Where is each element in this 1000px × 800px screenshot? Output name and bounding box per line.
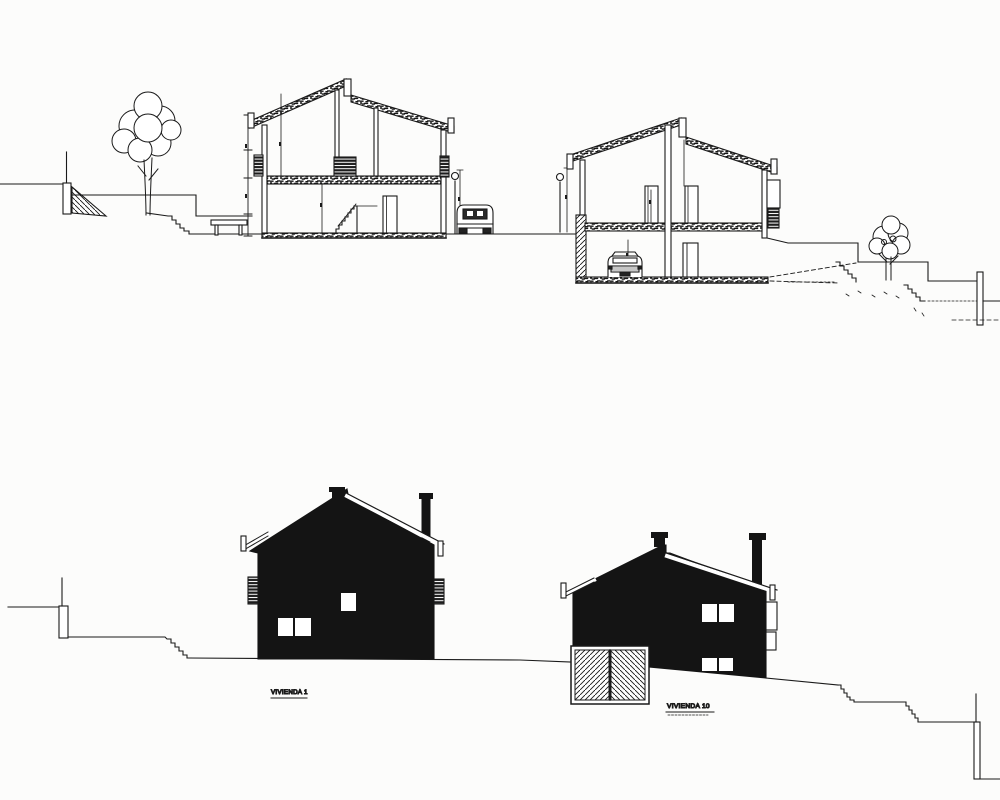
- floor-slab: [267, 176, 441, 184]
- garden-bench: [211, 220, 247, 235]
- house-1-cross-section: [248, 79, 454, 238]
- terrain-steps-east: [838, 685, 903, 702]
- chimney-icon: [749, 533, 766, 586]
- clerestory-wall: [679, 118, 686, 137]
- terrain-steps-west: [68, 637, 189, 658]
- window: [278, 618, 293, 636]
- dimension-line: [279, 94, 322, 233]
- cross-section-view: [0, 79, 1000, 325]
- stair-flight-lower: [336, 206, 357, 233]
- window: [719, 658, 733, 671]
- louver-vent: [248, 577, 258, 604]
- house-2-elevation: [561, 532, 777, 704]
- retaining-wall-west: [59, 578, 68, 638]
- dimension-line: [244, 115, 252, 236]
- side-window-panel: [766, 602, 777, 630]
- grass-ticks: [846, 291, 924, 316]
- window: [702, 658, 717, 671]
- blueprint-page: VIVIENDA 1: [0, 0, 1000, 800]
- roof-left: [570, 118, 681, 162]
- slope-line: [766, 678, 838, 685]
- interior-wall: [374, 108, 378, 176]
- basement-slab: [576, 277, 768, 283]
- retaining-wall-east: [974, 694, 1000, 779]
- wall-right: [762, 170, 767, 238]
- elevation-view: VIVIENDA 1: [8, 487, 1000, 779]
- door: [685, 186, 698, 223]
- dimension-line: [564, 168, 570, 232]
- window: [295, 618, 311, 636]
- wall-left: [580, 160, 585, 215]
- window: [719, 604, 734, 622]
- roof-left: [250, 79, 346, 128]
- louver-vent: [440, 156, 449, 177]
- house-1-elevation: [241, 487, 444, 659]
- house-2-label: VIVIENDA 10: [667, 703, 710, 710]
- louver-vent: [768, 208, 779, 228]
- fascia-board: [771, 159, 777, 174]
- door: [383, 196, 397, 233]
- tree-icon: [112, 92, 181, 215]
- tree-icon: [869, 216, 910, 280]
- wall-left: [262, 125, 267, 237]
- louver-vent: [434, 579, 444, 604]
- fascia-board: [567, 154, 573, 169]
- street-lamp-icon: [557, 174, 564, 233]
- side-window-panel: [766, 632, 776, 650]
- terrain-steps-east: [903, 702, 974, 722]
- basement-door: [683, 243, 698, 277]
- floor-slab: [585, 223, 762, 231]
- interior-wall: [665, 125, 671, 277]
- louver-vent: [254, 155, 263, 176]
- window: [341, 593, 356, 611]
- roof-right: [686, 137, 777, 174]
- silhouette: [250, 489, 434, 659]
- terrain-steps-east: [904, 285, 925, 301]
- house-1-label: VIVIENDA 1: [271, 689, 308, 696]
- car-icon: [608, 252, 642, 277]
- vent-shaft: [767, 180, 780, 208]
- terrain-east: [767, 216, 1000, 325]
- architectural-drawing: VIVIENDA 1: [0, 0, 1000, 800]
- window: [702, 604, 717, 622]
- hatched-embankment: [72, 187, 106, 216]
- fascia-board: [248, 113, 254, 128]
- terrain-east: [766, 678, 1000, 779]
- wall-right: [441, 130, 446, 237]
- door: [645, 186, 658, 223]
- street-between-houses: [446, 168, 580, 234]
- label-vivienda-10: VIVIENDA 10: [666, 703, 714, 715]
- roof-right: [351, 95, 454, 133]
- retaining-wall-west: [63, 152, 106, 216]
- garage-door: [571, 646, 649, 704]
- house-2-cross-section: [567, 118, 780, 283]
- fascia-board: [448, 118, 454, 133]
- clerestory-wall: [344, 79, 351, 96]
- retaining-wall-east: [952, 272, 1000, 325]
- label-vivienda-1: VIVIENDA 1: [271, 689, 308, 698]
- stair-flight-upper: [334, 157, 356, 176]
- car-icon: [457, 205, 493, 233]
